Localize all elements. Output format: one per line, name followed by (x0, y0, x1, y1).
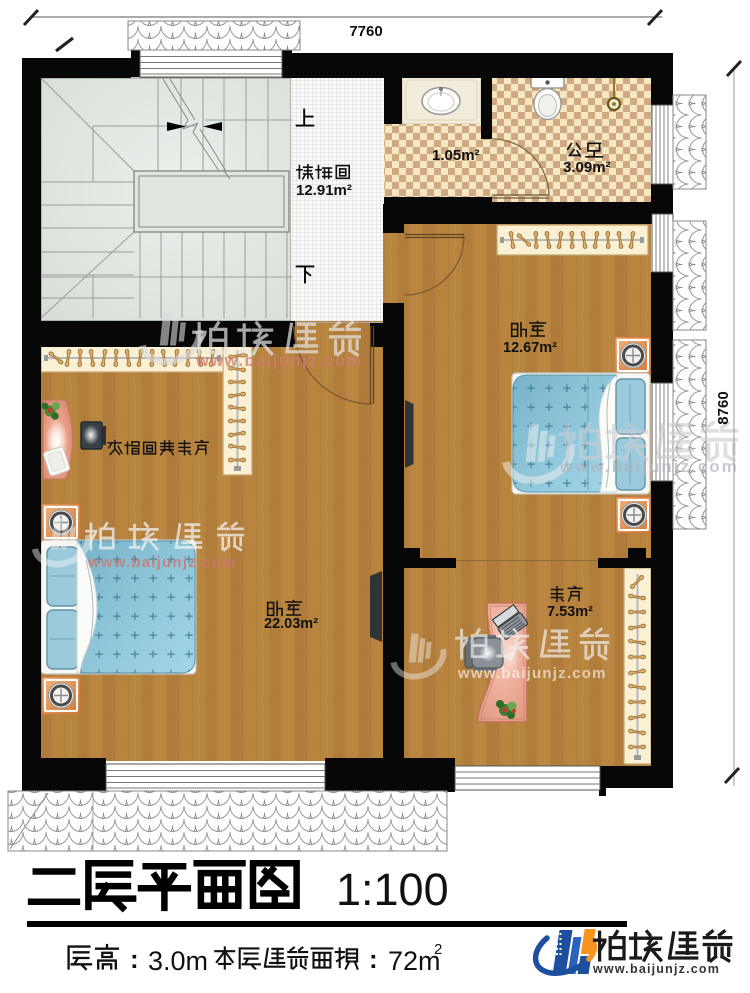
svg-text::: : (369, 944, 378, 974)
svg-text:12.91m²: 12.91m² (296, 182, 352, 199)
svg-text:22.03m²: 22.03m² (264, 616, 318, 632)
svg-text:3.09m²: 3.09m² (563, 159, 611, 176)
svg-text:1:100: 1:100 (336, 864, 449, 915)
svg-text::: : (130, 944, 139, 974)
svg-text:12.67m²: 12.67m² (503, 340, 557, 356)
svg-text:7.53m²: 7.53m² (547, 604, 593, 620)
svg-text:www.baijunjz.com: www.baijunjz.com (195, 352, 362, 370)
svg-text:72m: 72m (388, 946, 441, 976)
svg-text:1.05m²: 1.05m² (432, 147, 480, 164)
svg-text:7760: 7760 (349, 23, 382, 40)
svg-text:www.baijunjz.com: www.baijunjz.com (457, 665, 607, 682)
svg-text:8760: 8760 (715, 391, 732, 424)
svg-text:www.baijunjz.com: www.baijunjz.com (592, 962, 720, 976)
svg-text:www.baijunjz.com: www.baijunjz.com (559, 457, 739, 476)
svg-text:2: 2 (434, 941, 442, 958)
svg-text:3.0m: 3.0m (148, 946, 208, 976)
svg-text:www.baijunjz.com: www.baijunjz.com (87, 554, 237, 571)
